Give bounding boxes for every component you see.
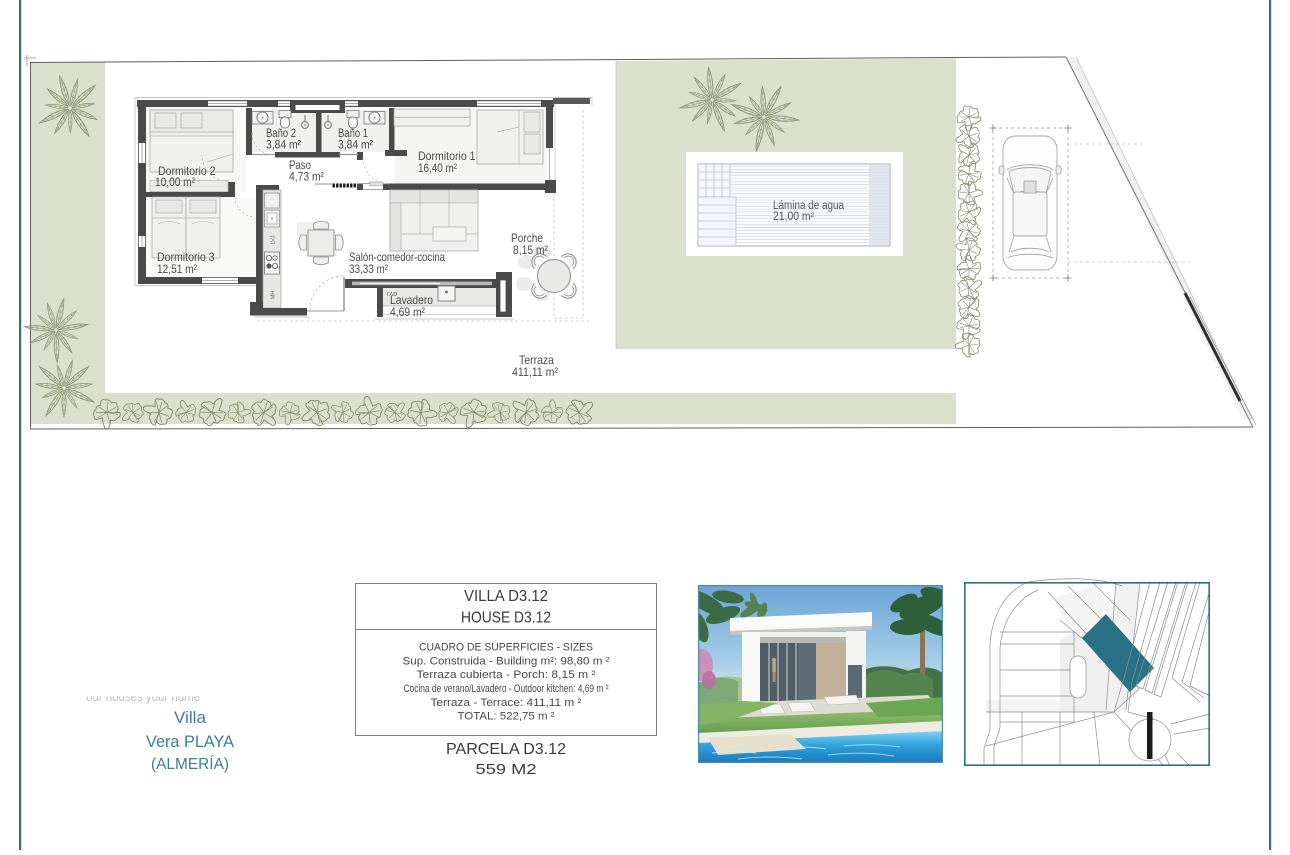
svg-text:Vera PLAYA: Vera PLAYA xyxy=(146,732,235,751)
svg-text:(ALMERÍA): (ALMERÍA) xyxy=(151,754,229,773)
svg-text:4,69 m²: 4,69 m² xyxy=(390,305,425,319)
svg-text:21,00 m²: 21,00 m² xyxy=(773,211,814,223)
svg-text:Villa: Villa xyxy=(174,708,207,727)
svg-text:3,84 m²: 3,84 m² xyxy=(338,138,373,152)
svg-text:Terraza - Terrace: 411,11 m ²: Terraza - Terrace: 411,11 m ² xyxy=(431,697,582,709)
svg-text:16,40 m²: 16,40 m² xyxy=(418,161,457,175)
svg-text:3,84 m²: 3,84 m² xyxy=(266,138,301,152)
svg-text:CUADRO DE SUPERFICIES - SIZES: CUADRO DE SUPERFICIES - SIZES xyxy=(419,642,593,654)
svg-text:33,33 m²: 33,33 m² xyxy=(349,262,388,276)
svg-text:559 M2: 559 M2 xyxy=(476,761,537,778)
svg-text:Sup. Construida - Building m²: Sup. Construida - Building m²: 98,80 m ² xyxy=(403,655,610,667)
svg-text:Terraza cubierta - Porch: 8,1: Terraza cubierta - Porch: 8,15 m ² xyxy=(417,669,596,681)
svg-text:VILLA D3.12: VILLA D3.12 xyxy=(464,588,548,605)
svg-text:8,15 m²: 8,15 m² xyxy=(513,243,548,257)
svg-text:HOUSE D3.12: HOUSE D3.12 xyxy=(461,610,551,627)
svg-text:10,00 m²: 10,00 m² xyxy=(155,175,195,189)
svg-text:PARCELA D3.12: PARCELA D3.12 xyxy=(446,741,566,758)
svg-text:411,11 m²: 411,11 m² xyxy=(512,365,558,379)
svg-text:MH: MH xyxy=(271,291,277,300)
svg-text:4,73 m²: 4,73 m² xyxy=(289,170,324,184)
svg-text:Cocina de verano/Lavadero -: Cocina de verano/Lavadero - Outdoor kitc… xyxy=(404,683,609,695)
svg-text:TOTAL: 522,75 m ²: TOTAL: 522,75 m ² xyxy=(458,711,555,723)
svg-text:LVJ: LVJ xyxy=(271,235,277,244)
svg-text:12,51 m²: 12,51 m² xyxy=(157,262,197,276)
